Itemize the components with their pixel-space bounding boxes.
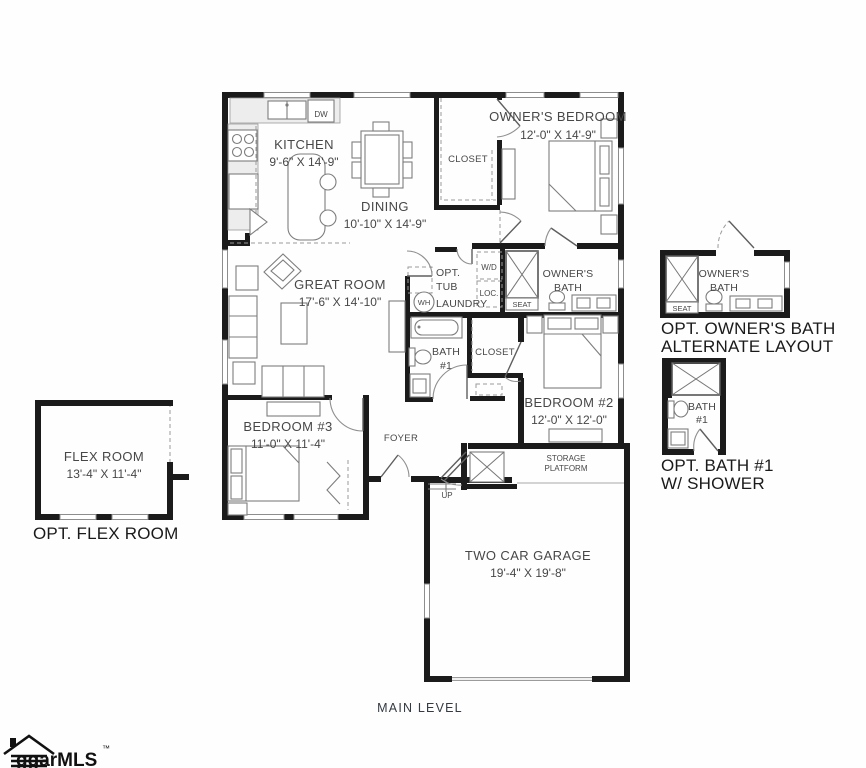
- great-room-label: GREAT ROOM: [294, 277, 386, 292]
- garage-label: TWO CAR GARAGE: [465, 548, 591, 563]
- range: [228, 130, 257, 161]
- end-table: [233, 362, 255, 384]
- double-vanity: [572, 295, 616, 311]
- up-label: UP: [441, 491, 452, 500]
- opt-owners-bath-label-1: OWNER'S: [699, 268, 750, 280]
- end-table: [236, 266, 258, 290]
- flex-room-label: FLEX ROOM: [64, 449, 144, 464]
- water-heater-label: WH: [418, 298, 431, 307]
- toilet: [674, 401, 688, 417]
- pantry-door: [250, 209, 267, 235]
- bifold-door: [327, 462, 340, 504]
- nightstand: [601, 215, 617, 234]
- opt-bath1-label-2: #1: [696, 414, 708, 426]
- opt-tub-label-1: OPT.: [436, 267, 460, 279]
- mls-logo-text: ggarMLS: [16, 750, 97, 768]
- double-vanity: [730, 296, 782, 311]
- owners-closet-label: CLOSET: [448, 154, 488, 165]
- garage-dims: 19'-4" X 19'-8": [490, 566, 566, 580]
- owners-bath-label-2: BATH: [554, 282, 582, 294]
- floor-plan-page: KITCHEN 9'-6" X 14'-9" DW DINING 10'-10"…: [0, 0, 866, 768]
- flex-room-dims: 13'-4" X 11'-4": [67, 467, 142, 481]
- footer: MAIN LEVEL ggarMLS ™: [4, 701, 463, 768]
- bedroom2-dims: 12'-0" X 12'-0": [531, 413, 607, 427]
- nightstand: [603, 316, 618, 333]
- nightstand: [527, 316, 542, 333]
- bath1-label-2: #1: [440, 360, 452, 372]
- kitchen-dims: 9'-6" X 14'-9": [269, 155, 338, 169]
- opt-flex-caption: OPT. FLEX ROOM: [33, 524, 178, 543]
- nightstand: [228, 503, 247, 515]
- garage-door: [452, 676, 592, 682]
- location-label: LOC.: [480, 289, 499, 298]
- bed: [544, 315, 601, 388]
- bench: [389, 301, 405, 352]
- window-seat: [549, 429, 602, 442]
- dresser: [502, 149, 515, 199]
- owners-bath-label-1: OWNER'S: [543, 268, 594, 280]
- dishwasher-label: DW: [314, 110, 328, 119]
- mls-logo-tm: ™: [102, 744, 110, 753]
- opt-tub-label-2: TUB: [436, 281, 458, 293]
- island-stool: [320, 174, 336, 190]
- storage-label-2: PLATFORM: [545, 464, 588, 473]
- washer-dryer-label: W/D: [481, 263, 497, 272]
- bedroom3-dims: 11'-0" X 11'-4": [251, 437, 325, 451]
- owners-bedroom-dims: 12'-0" X 14'-9": [520, 128, 596, 142]
- kitchen-label: KITCHEN: [274, 137, 334, 152]
- foyer-label: FOYER: [384, 433, 418, 444]
- opt-owners-bath-caption-2: ALTERNATE LAYOUT: [661, 337, 833, 356]
- laundry-label: LAUNDRY: [436, 298, 487, 310]
- opt-owners-bath-caption-1: OPT. OWNER'S BATH: [661, 319, 835, 338]
- attic-landing: [470, 452, 504, 482]
- island-stool: [320, 210, 336, 226]
- refrigerator: [229, 174, 258, 209]
- shower-seat-label: SEAT: [512, 300, 531, 309]
- toilet: [415, 350, 431, 364]
- opt-owners-bath-label-2: BATH: [710, 282, 738, 294]
- main-level-label: MAIN LEVEL: [377, 701, 463, 715]
- opt-bath1-caption-2: W/ SHOWER: [661, 474, 765, 493]
- great-room-dims: 17'-6" X 14'-10": [299, 295, 381, 309]
- storage-label-1: STORAGE: [547, 454, 586, 463]
- great-room-furniture: [229, 254, 405, 397]
- bath1-label-1: BATH: [432, 346, 460, 358]
- owners-bedroom-label: OWNER'S BEDROOM: [489, 109, 627, 124]
- opt-shower-seat-label: SEAT: [672, 304, 691, 313]
- bedroom3-label: BEDROOM #3: [243, 419, 332, 434]
- coffee-table: [281, 303, 307, 344]
- opt-bath1-caption-1: OPT. BATH #1: [661, 456, 774, 475]
- bedroom2-closet-label: CLOSET: [475, 347, 515, 358]
- kitchen-counters: [228, 98, 340, 240]
- dining-label: DINING: [361, 199, 409, 214]
- dining-table-set: [352, 122, 412, 197]
- bedroom2-label: BEDROOM #2: [524, 395, 613, 410]
- loveseat: [262, 366, 324, 397]
- sofa: [229, 296, 257, 358]
- opt-bath1-label-1: BATH: [688, 401, 716, 413]
- dresser: [267, 402, 320, 416]
- floor-plan-drawing: KITCHEN 9'-6" X 14'-9" DW DINING 10'-10"…: [0, 0, 866, 768]
- dining-dims: 10'-10" X 14'-9": [344, 217, 426, 231]
- optional-tub-outline: [408, 267, 432, 293]
